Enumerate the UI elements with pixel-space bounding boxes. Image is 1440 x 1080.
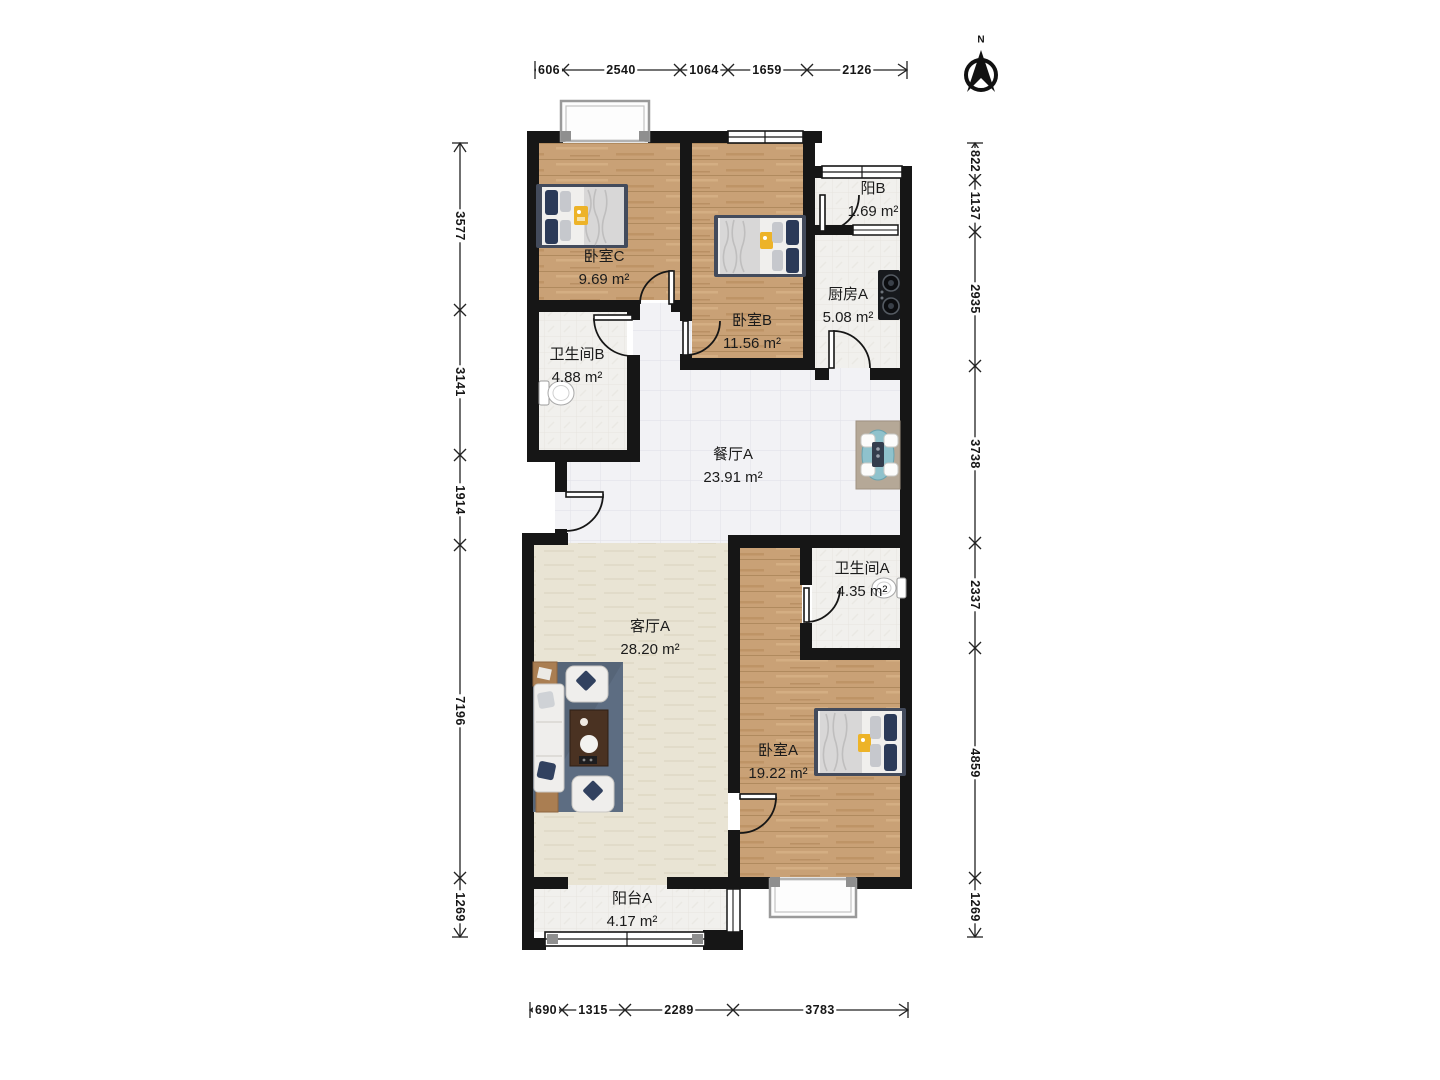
dim-left-3: 7196 [453,694,467,727]
bed-icon [714,215,806,277]
room-name: 阳台A [607,887,658,910]
room-name: 卧室B [723,309,781,332]
dim-top-0: 606 [536,63,562,77]
room-label-balcony-a: 阳台A 4.17 m² [607,887,658,933]
room-name: 卧室A [748,739,807,762]
bay-window-bottom [770,877,856,917]
room-area: 4.35 m² [834,580,889,603]
bay-window-top [561,101,649,141]
dim-right-2: 2935 [968,282,982,315]
dim-top-4: 2126 [840,63,873,77]
sofa-set-icon [533,662,623,812]
dim-left-1: 3141 [453,365,467,398]
room-area: 4.17 m² [607,910,658,933]
dim-left-0: 3577 [453,209,467,242]
room-label-bathroom-b: 卫生间B 4.88 m² [549,343,604,389]
room-area: 28.20 m² [620,638,679,661]
window [728,131,803,143]
dim-right-3: 3738 [968,437,982,470]
window [727,889,740,932]
dim-bottom-1: 1315 [576,1003,609,1017]
floor-plan-page: N 卧室C 9.69 m² 卫生间B 4.88 m² 卧室B 11.56 m² … [0,0,1440,1080]
balcony-window [545,932,705,946]
room-name: 阳B [848,177,899,200]
room-name: 卫生间A [834,557,889,580]
dimension-line-left [452,143,468,937]
room-area: 11.56 m² [723,332,781,355]
room-label-living-a: 客厅A 28.20 m² [620,615,679,661]
compass-icon [966,50,996,92]
room-area: 1.69 m² [848,200,899,223]
floor-hallway [740,548,802,648]
window [853,225,898,235]
dim-bottom-2: 2289 [662,1003,695,1017]
dim-left-4: 1269 [453,890,467,923]
compass-north-label: N [977,35,984,46]
room-name: 餐厅A [703,443,762,466]
room-area: 4.88 m² [549,366,604,389]
room-name: 卧室C [579,245,630,268]
room-label-bedroom-a: 卧室A 19.22 m² [748,739,807,785]
dim-right-4: 2337 [968,578,982,611]
stove-icon [878,270,900,320]
room-name: 卫生间B [549,343,604,366]
dim-right-1: 1137 [968,190,982,223]
dining-table-icon [856,421,900,489]
dim-right-6: 1269 [968,890,982,923]
room-area: 9.69 m² [579,268,630,291]
room-label-balcony-b: 阳B 1.69 m² [848,177,899,223]
room-label-kitchen-a: 厨房A 5.08 m² [823,283,874,329]
room-label-bedroom-b: 卧室B 11.56 m² [723,309,781,355]
dim-left-2: 1914 [453,483,467,516]
dim-top-3: 1659 [750,63,783,77]
room-name: 厨房A [823,283,874,306]
room-area: 19.22 m² [748,762,807,785]
room-name: 客厅A [620,615,679,638]
dim-bottom-0: 690 [533,1003,559,1017]
dimension-line-right [967,143,983,937]
dim-top-1: 2540 [604,63,637,77]
room-label-bathroom-a: 卫生间A 4.35 m² [834,557,889,603]
dim-top-2: 1064 [687,63,720,77]
room-area: 5.08 m² [823,306,874,329]
room-area: 23.91 m² [703,466,762,489]
room-label-bedroom-c: 卧室C 9.69 m² [579,245,630,291]
dim-right-5: 4859 [968,746,982,779]
bed-icon [814,708,906,776]
room-label-dining-a: 餐厅A 23.91 m² [703,443,762,489]
dim-right-0: 822 [968,148,982,174]
coffee-table-icon [570,710,608,766]
floor-plan-drawing [0,0,1440,1080]
dim-bottom-3: 3783 [803,1003,836,1017]
bed-icon [536,184,628,248]
